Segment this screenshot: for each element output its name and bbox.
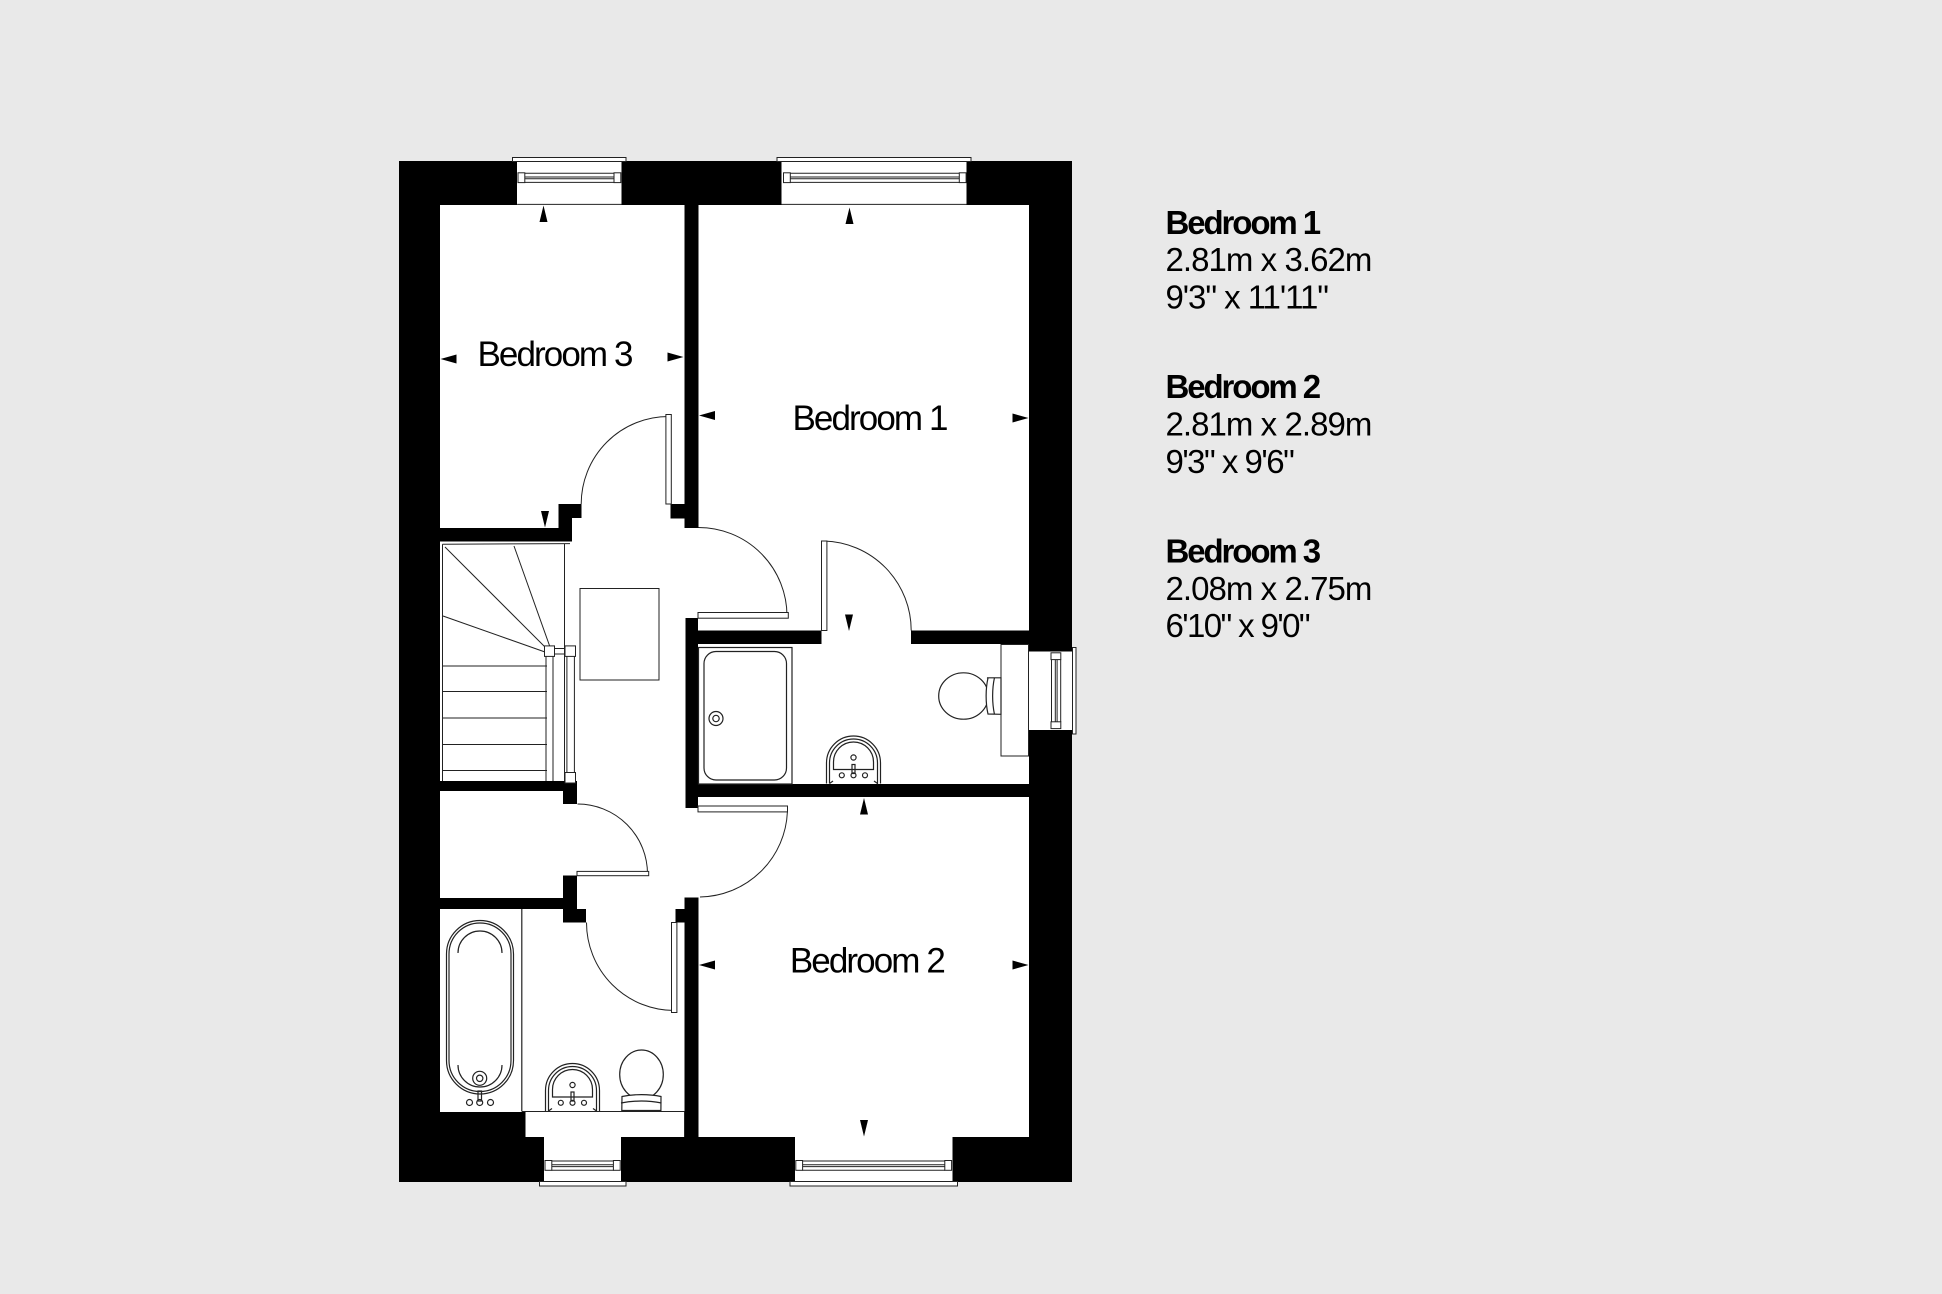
svg-text:Bedroom 2: Bedroom 2 <box>1166 368 1321 405</box>
svg-text:6'10" x 9'0": 6'10" x 9'0" <box>1166 607 1310 644</box>
svg-text:Bedroom 3: Bedroom 3 <box>1166 533 1321 570</box>
svg-text:Bedroom 3: Bedroom 3 <box>477 335 632 374</box>
svg-text:Bedroom 1: Bedroom 1 <box>792 399 947 438</box>
svg-text:2.81m x 3.62m: 2.81m x 3.62m <box>1166 241 1372 278</box>
svg-text:Bedroom 1: Bedroom 1 <box>1166 204 1321 241</box>
svg-text:9'3" x 9'6": 9'3" x 9'6" <box>1166 443 1295 480</box>
svg-text:Bedroom 2: Bedroom 2 <box>790 942 945 981</box>
svg-text:9'3" x 11'11": 9'3" x 11'11" <box>1166 278 1329 315</box>
svg-text:2.08m x 2.75m: 2.08m x 2.75m <box>1166 570 1372 607</box>
svg-text:2.81m x 2.89m: 2.81m x 2.89m <box>1166 406 1372 443</box>
